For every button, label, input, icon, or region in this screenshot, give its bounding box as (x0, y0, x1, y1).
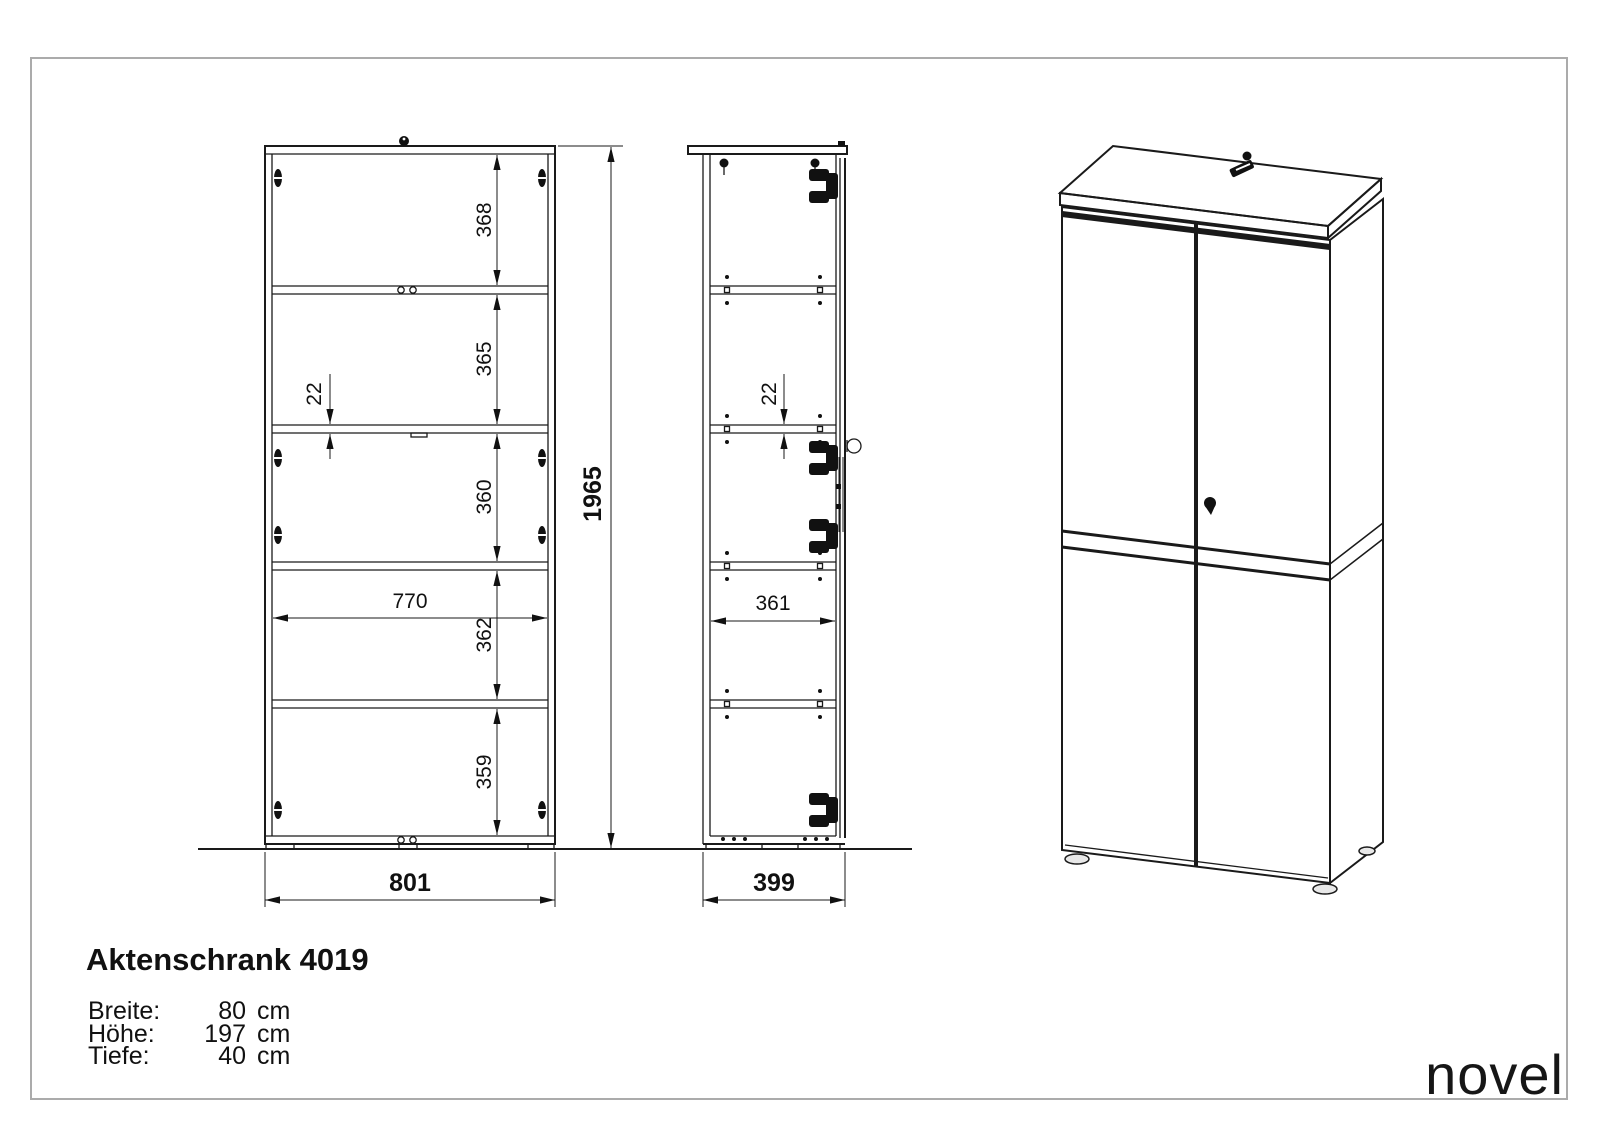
dim-shelf-thickness-side: 22 (758, 382, 781, 405)
cabinet-top-edge-right (1328, 179, 1381, 238)
side-joint-lower (1330, 539, 1383, 580)
dim-compartment-height-3: 360 (473, 479, 496, 514)
shelves-front (272, 286, 548, 708)
keyhole-icon (1204, 497, 1216, 515)
hinge-icon (273, 526, 283, 544)
hinge-icon (537, 449, 547, 467)
hinge-icon (537, 801, 547, 819)
dim-shelf-thickness-front: 22 (303, 382, 326, 405)
spec-unit: cm (257, 1045, 290, 1068)
hinge-icon (537, 526, 547, 544)
top-screws (720, 159, 820, 176)
compartment-dimension-chain: 368 365 360 362 359 (473, 155, 497, 835)
inner-depth-dim: 361 (711, 592, 835, 621)
hinge-icon (809, 519, 838, 553)
dim-compartment-height-1: 368 (473, 202, 496, 237)
top-latch-3d (1229, 152, 1255, 178)
side-joint-upper (1330, 523, 1383, 564)
hinge-icon (809, 441, 838, 475)
brand-logo: novel (1425, 1042, 1564, 1107)
dim-inner-depth: 361 (755, 592, 790, 615)
hinge-icon (537, 169, 547, 187)
top-latch-side (838, 141, 845, 146)
shelf-thickness-dim-front: 22 (303, 374, 330, 459)
perspective-view (1060, 146, 1383, 894)
dim-overall-depth: 399 (753, 869, 795, 897)
hinge-icon (273, 801, 283, 819)
overall-depth-dim: 399 (703, 852, 845, 907)
dim-overall-width: 801 (389, 869, 431, 897)
shelf-thickness-dim-side: 22 (758, 374, 784, 459)
side-view: 22 361 399 (688, 141, 861, 907)
hinge-icon (809, 169, 838, 203)
dim-compartment-height-5: 359 (473, 754, 496, 789)
hinge-icon (273, 449, 283, 467)
keyhole-knob-icon (847, 439, 861, 453)
cabinet-right-face (1330, 199, 1383, 883)
hinge-hardware-side (809, 169, 838, 827)
shelves-side (710, 286, 836, 708)
dim-compartment-height-4: 362 (473, 617, 496, 652)
spec-value: 40 (196, 1045, 246, 1068)
hinge-icon (273, 169, 283, 187)
shelf-fittings-side (721, 275, 829, 841)
dim-inner-width: 770 (392, 590, 427, 613)
dim-overall-height: 1965 (579, 466, 607, 522)
front-view: 368 365 360 362 359 22 770 801 (265, 136, 623, 907)
cabinet-top-face (1060, 146, 1381, 226)
spec-list: Breite:80cm Höhe:197cm Tiefe:40cm (88, 1000, 290, 1068)
product-title: Aktenschrank 4019 (86, 942, 369, 978)
drawing-sheet: 368 365 360 362 359 22 770 801 (0, 0, 1600, 1131)
dim-compartment-height-2: 365 (473, 341, 496, 376)
hinge-symbols-front (273, 169, 547, 819)
overall-width-dim: 801 (265, 852, 555, 907)
hinge-icon (809, 793, 838, 827)
spec-row: Tiefe:40cm (88, 1045, 290, 1068)
top-latch-symbol (399, 136, 409, 146)
feet-3d (1065, 847, 1375, 894)
inner-width-dim: 770 (273, 590, 547, 618)
overall-height-dim: 1965 (558, 146, 623, 848)
shelf-pin-holes (398, 287, 427, 843)
spec-label: Tiefe: (88, 1045, 196, 1068)
